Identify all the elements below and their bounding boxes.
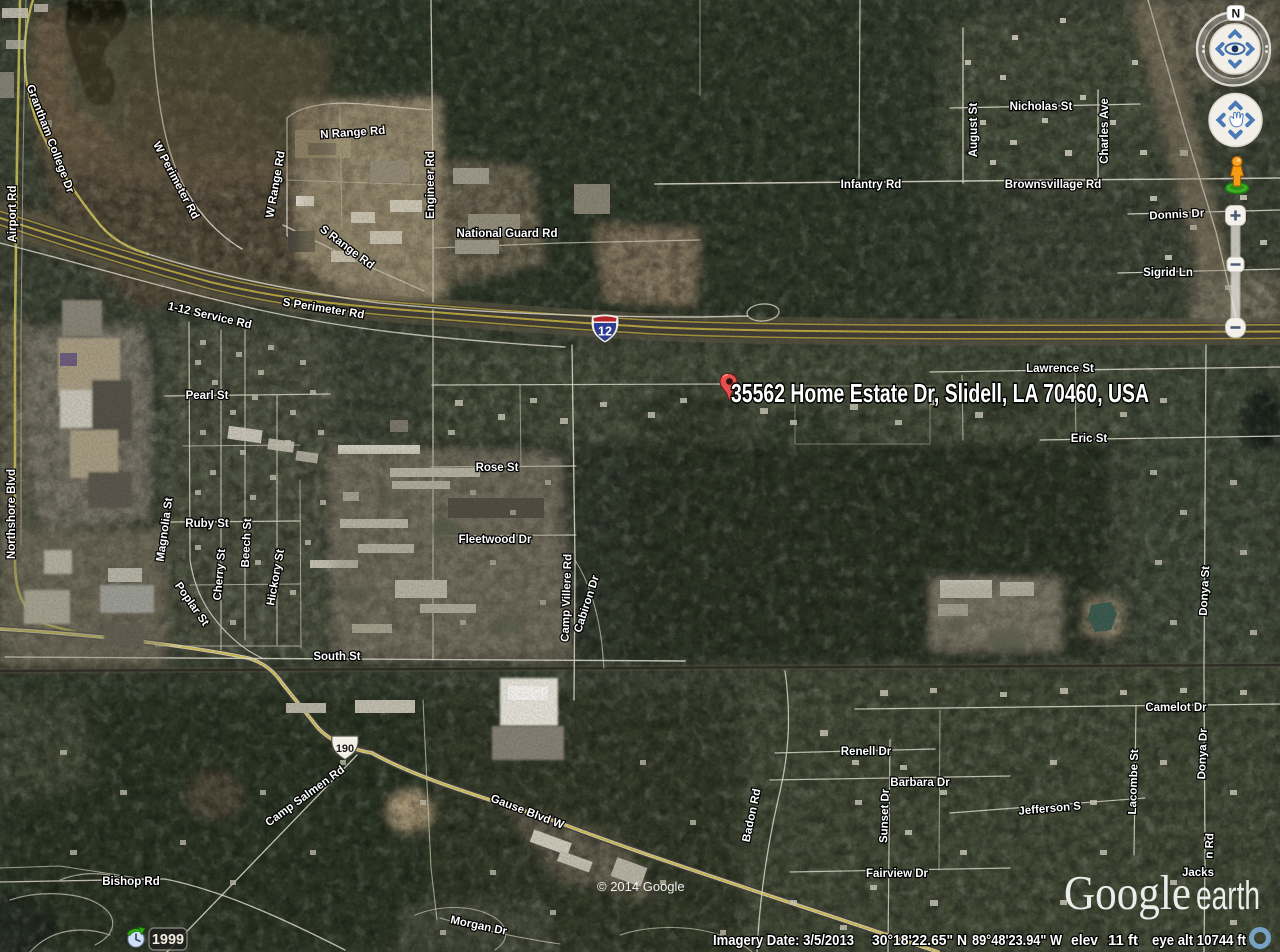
svg-text:30°18'22.65" N: 30°18'22.65" N <box>872 932 967 949</box>
svg-text:eye alt 10744 ft: eye alt 10744 ft <box>1152 932 1246 949</box>
svg-text:Bishop Rd: Bishop Rd <box>102 876 160 888</box>
svg-text:Ruby St: Ruby St <box>185 518 229 530</box>
svg-text:190: 190 <box>336 743 354 755</box>
svg-text:1999: 1999 <box>152 932 184 948</box>
svg-text:Camelot Dr: Camelot Dr <box>1145 702 1207 714</box>
svg-text:12: 12 <box>598 325 612 339</box>
svg-text:Lacombe St: Lacombe St <box>1127 749 1141 815</box>
svg-text:Airport Rd: Airport Rd <box>7 186 19 243</box>
svg-text:Lawrence St: Lawrence St <box>1026 363 1094 375</box>
svg-text:Fleetwood Dr: Fleetwood Dr <box>459 534 532 546</box>
svg-text:Google: Google <box>1064 865 1191 920</box>
svg-text:elev: elev <box>1071 932 1099 949</box>
svg-text:Pearl St: Pearl St <box>186 390 229 402</box>
svg-text:Rose St: Rose St <box>476 462 519 474</box>
svg-text:Nicholas St: Nicholas St <box>1010 101 1073 113</box>
svg-text:Brownsvillage Rd: Brownsvillage Rd <box>1005 179 1102 191</box>
svg-text:August St: August St <box>968 103 980 157</box>
svg-text:11 ft: 11 ft <box>1108 932 1138 949</box>
svg-text:Infantry Rd: Infantry Rd <box>841 179 902 191</box>
svg-text:Renell Dr: Renell Dr <box>841 746 892 758</box>
svg-text:Barbara Dr: Barbara Dr <box>890 777 950 789</box>
svg-text:Charles Ave: Charles Ave <box>1099 98 1111 164</box>
svg-text:Donya Dr: Donya Dr <box>1196 728 1210 780</box>
svg-text:Engineer Rd: Engineer Rd <box>425 151 437 219</box>
svg-text:earth: earth <box>1196 874 1260 918</box>
svg-text:© 2014 Google: © 2014 Google <box>597 879 685 894</box>
svg-text:Sigrid Ln: Sigrid Ln <box>1143 267 1193 279</box>
svg-text:35562 Home Estate Dr, Slidell,: 35562 Home Estate Dr, Slidell, LA 70460,… <box>731 378 1149 408</box>
svg-text:National Guard Rd: National Guard Rd <box>457 228 558 240</box>
svg-text:Imagery Date: 3/5/2013: Imagery Date: 3/5/2013 <box>713 932 854 949</box>
svg-text:South St: South St <box>313 651 360 663</box>
svg-text:89°48'23.94" W: 89°48'23.94" W <box>972 932 1063 949</box>
svg-text:Fairview Dr: Fairview Dr <box>866 868 929 880</box>
svg-text:Eric St: Eric St <box>1071 433 1108 445</box>
svg-text:Northshore Blvd: Northshore Blvd <box>6 469 18 559</box>
svg-text:N: N <box>1231 7 1240 21</box>
svg-text:n Rd: n Rd <box>1204 833 1217 859</box>
svg-text:Sunset Dr: Sunset Dr <box>878 788 892 843</box>
